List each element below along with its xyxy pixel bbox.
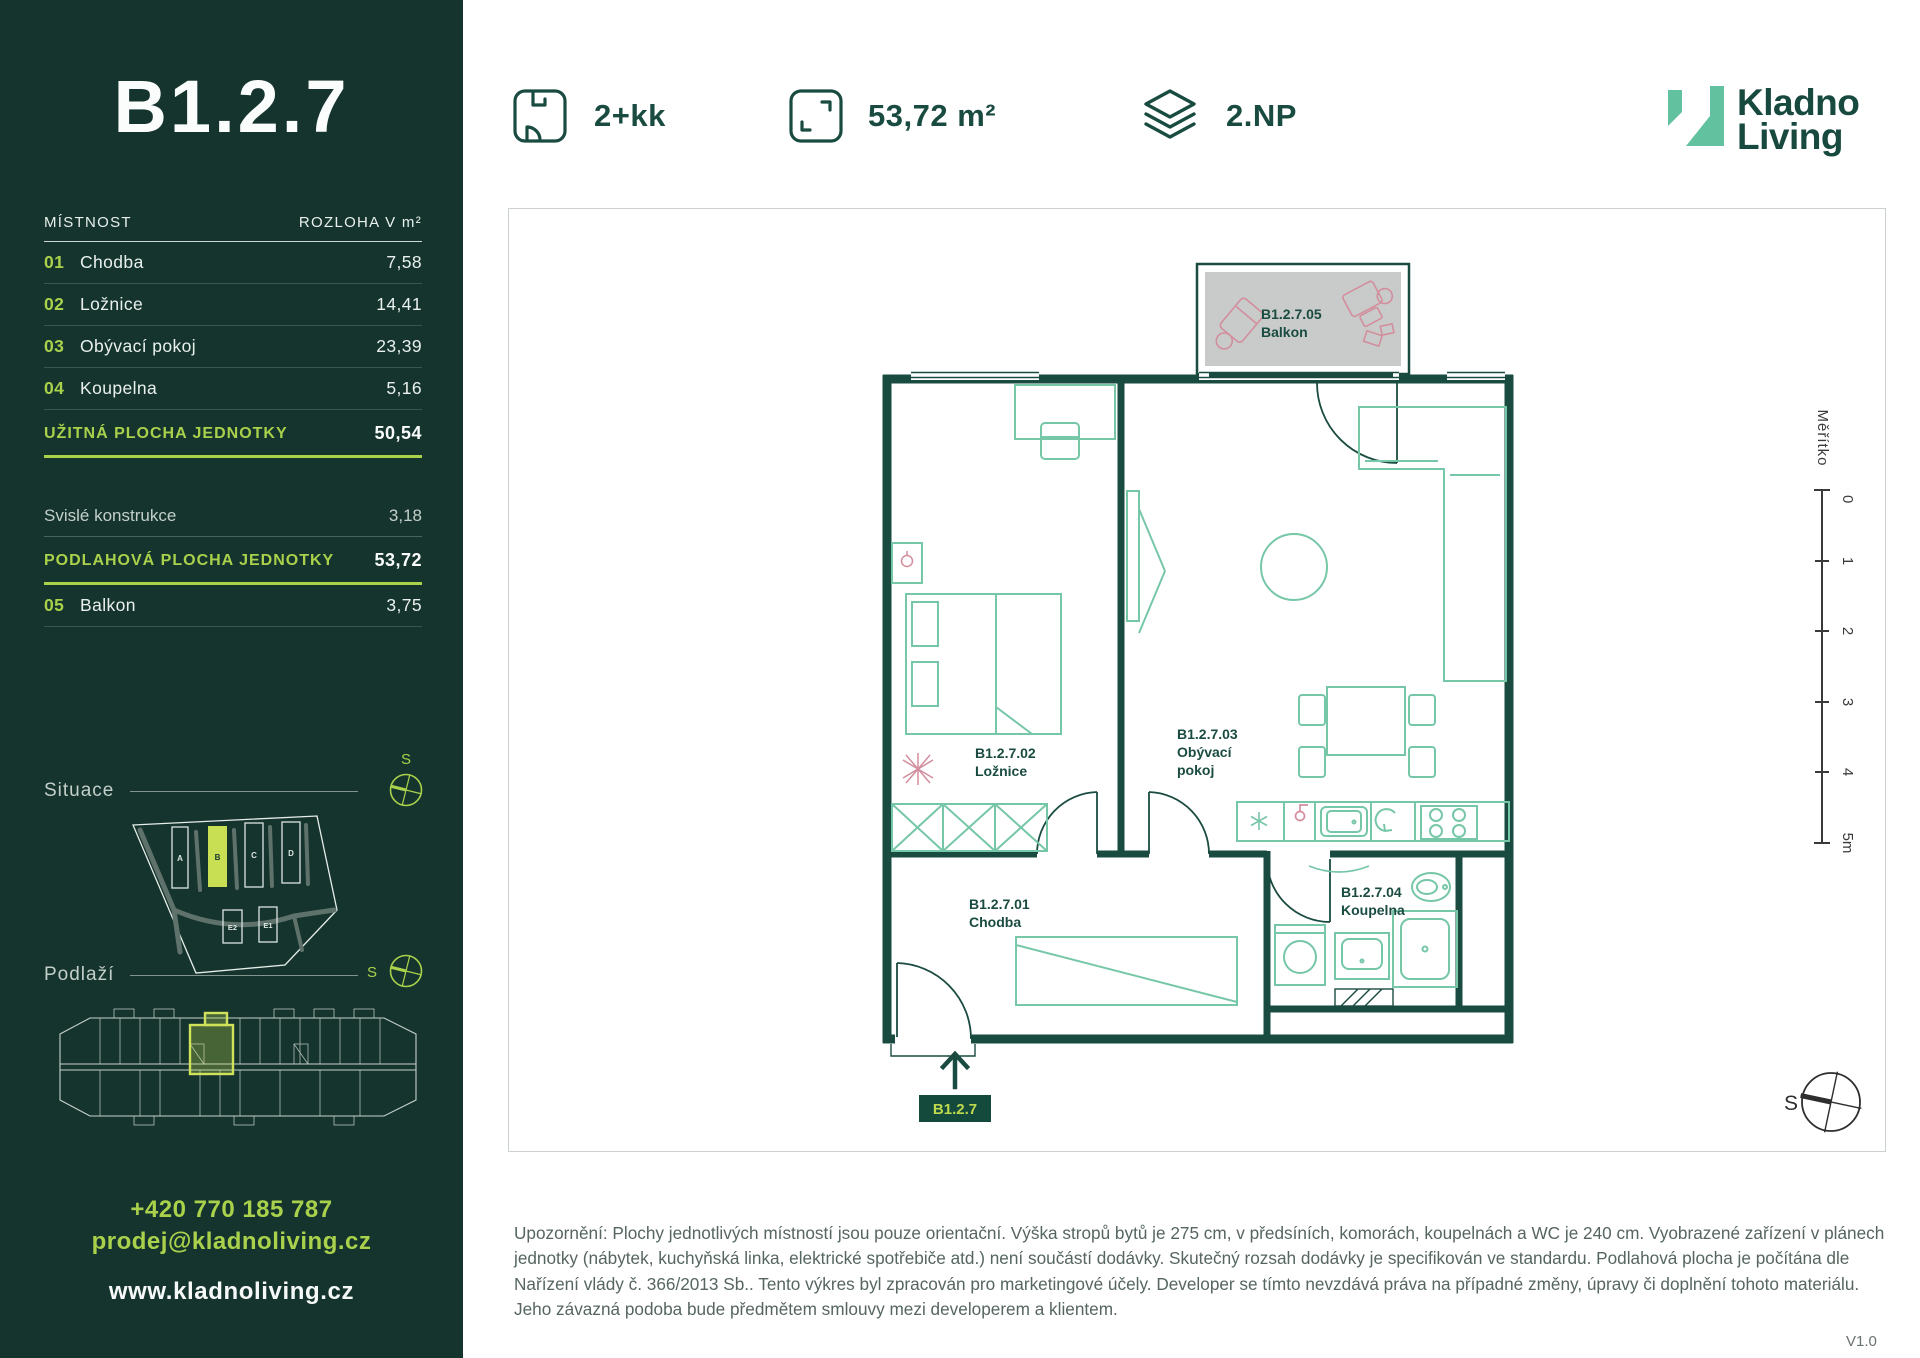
unit-badge: B1.2.7 xyxy=(919,1095,991,1122)
situace-section: Situace S xyxy=(44,780,422,978)
podlazi-label: Podlaží xyxy=(44,964,114,986)
floor-area-row: PODLAHOVÁ PLOCHA JEDNOTKY 53,72 xyxy=(44,537,422,585)
room-area-table: MÍSTNOST ROZLOHA V m² 01 Chodba 7,58 02 … xyxy=(44,214,422,627)
svg-text:S: S xyxy=(1784,1092,1798,1115)
vertical-structures-row: Svislé konstrukce 3,18 xyxy=(44,496,422,537)
svg-text:Balkon: Balkon xyxy=(1261,324,1308,340)
row-area: 7,58 xyxy=(386,252,422,273)
hob-icon xyxy=(1421,806,1477,839)
highlighted-unit xyxy=(190,1013,233,1074)
kitchen xyxy=(1237,802,1509,841)
col-room-header: MÍSTNOST xyxy=(44,214,132,231)
row-number: 03 xyxy=(44,336,80,357)
brand-line2: Living xyxy=(1737,120,1859,154)
row-area: 5,16 xyxy=(386,378,422,399)
spec-floor: 2.NP xyxy=(1140,86,1297,146)
floor-area-value: 53,72 xyxy=(374,550,422,571)
plan-compass-icon: S xyxy=(1784,1065,1868,1139)
row-name: Koupelna xyxy=(80,378,386,399)
podlazi-section: Podlaží S xyxy=(44,964,422,1134)
balcony-row: 05 Balkon 3,75 xyxy=(44,585,422,627)
svg-text:5m: 5m xyxy=(1839,833,1856,854)
spec-disposition: 2+kk xyxy=(512,86,666,146)
layout-icon xyxy=(512,88,568,144)
spec-disposition-label: 2+kk xyxy=(594,98,666,134)
divider-line xyxy=(130,975,358,976)
hall-closet xyxy=(1016,937,1237,1005)
table-header: MÍSTNOST ROZLOHA V m² xyxy=(44,214,422,242)
row-number: 05 xyxy=(44,595,80,616)
svg-text:Chodba: Chodba xyxy=(969,914,1021,930)
fridge-snowflake-icon xyxy=(1251,812,1267,830)
svg-text:A: A xyxy=(177,854,183,863)
spec-floor-label: 2.NP xyxy=(1226,98,1297,134)
room-labels: B1.2.7.02 Ložnice B1.2.7.03 Obývací poko… xyxy=(969,726,1405,930)
compass-icon: S xyxy=(382,748,430,814)
vertical-structures-value: 3,18 xyxy=(389,506,422,526)
version-label: V1.0 xyxy=(1846,1333,1877,1350)
svg-text:B1.2.7.01: B1.2.7.01 xyxy=(969,896,1030,912)
row-area: 23,39 xyxy=(376,336,422,357)
row-number: 02 xyxy=(44,294,80,315)
floor-icon xyxy=(1140,87,1200,145)
svg-text:S: S xyxy=(367,964,377,981)
balcony: B1.2.7.05 Balkon xyxy=(1197,264,1409,374)
svg-text:Obývací: Obývací xyxy=(1177,744,1233,760)
svg-text:E2: E2 xyxy=(228,923,237,932)
living-furniture xyxy=(1127,407,1506,777)
row-area: 3,75 xyxy=(386,595,422,616)
svg-text:E1: E1 xyxy=(263,921,272,930)
scale-bar: Měřítko 0 1 2 3 4 5m xyxy=(1814,409,1856,853)
sidebar: B1.2.7 MÍSTNOST ROZLOHA V m² 01 Chodba 7… xyxy=(0,0,463,1358)
floor-overview-map xyxy=(44,1004,425,1134)
usable-area-label: UŽITNÁ PLOCHA JEDNOTKY xyxy=(44,425,374,443)
svg-text:B1.2.7.02: B1.2.7.02 xyxy=(975,745,1036,761)
spec-area: 53,72 m² xyxy=(788,86,996,146)
svg-text:3: 3 xyxy=(1839,698,1856,706)
row-name: Chodba xyxy=(80,252,386,273)
row-name: Balkon xyxy=(80,595,386,616)
brand-logo: Kladno Living xyxy=(1666,84,1859,155)
svg-text:2: 2 xyxy=(1839,627,1856,635)
svg-text:Měřítko: Měřítko xyxy=(1814,409,1831,466)
contact-web[interactable]: www.kladnoliving.cz xyxy=(0,1278,463,1306)
svg-text:pokoj: pokoj xyxy=(1177,762,1214,778)
svg-text:B1.2.7.03: B1.2.7.03 xyxy=(1177,726,1238,742)
floor-plan-container: B1.2.7.05 Balkon xyxy=(508,208,1886,1152)
svg-text:B1.2.7: B1.2.7 xyxy=(933,1101,977,1118)
bedroom-furniture xyxy=(892,385,1115,851)
svg-text:B1.2.7.05: B1.2.7.05 xyxy=(1261,306,1322,322)
svg-text:B1.2.7.04: B1.2.7.04 xyxy=(1341,884,1402,900)
divider-line xyxy=(130,791,358,792)
unit-title: B1.2.7 xyxy=(0,64,463,149)
table-row: 03 Obývací pokoj 23,39 xyxy=(44,326,422,368)
area-icon xyxy=(788,88,844,144)
svg-text:0: 0 xyxy=(1839,495,1856,503)
floor-plan-svg: B1.2.7.05 Balkon xyxy=(509,209,1885,1151)
brand-line1: Kladno xyxy=(1737,86,1859,120)
walls xyxy=(883,375,1513,1043)
kladno-living-logo-icon xyxy=(1666,84,1724,148)
svg-text:C: C xyxy=(251,851,257,860)
shower-mat xyxy=(1335,989,1393,1006)
svg-text:1: 1 xyxy=(1839,557,1856,565)
contact-email[interactable]: prodej@kladnoliving.cz xyxy=(0,1228,463,1256)
disclaimer-text: Upozornění: Plochy jednotlivých místnost… xyxy=(514,1221,1892,1322)
doors xyxy=(891,383,1397,1056)
svg-text:S: S xyxy=(401,751,411,768)
row-area: 14,41 xyxy=(376,294,422,315)
situace-label: Situace xyxy=(44,780,114,802)
row-name: Ložnice xyxy=(80,294,376,315)
svg-text:D: D xyxy=(288,849,294,858)
usable-area-row: UŽITNÁ PLOCHA JEDNOTKY 50,54 xyxy=(44,410,422,458)
row-name: Obývací pokoj xyxy=(80,336,376,357)
spec-area-label: 53,72 m² xyxy=(868,98,996,134)
usable-area-value: 50,54 xyxy=(374,423,422,444)
kitchen-faucet-icon xyxy=(1296,805,1309,821)
svg-text:Ložnice: Ložnice xyxy=(975,763,1027,779)
contact-phone[interactable]: +420 770 185 787 xyxy=(0,1196,463,1224)
col-area-header: ROZLOHA V m² xyxy=(299,214,422,231)
plant-icon xyxy=(903,753,933,785)
svg-text:B: B xyxy=(215,853,221,862)
vertical-structures-label: Svislé konstrukce xyxy=(44,506,389,526)
compass-icon: S xyxy=(358,952,432,990)
svg-text:4: 4 xyxy=(1839,768,1856,776)
table-row: 01 Chodba 7,58 xyxy=(44,242,422,284)
row-number: 01 xyxy=(44,252,80,273)
row-number: 04 xyxy=(44,378,80,399)
table-row: 02 Ložnice 14,41 xyxy=(44,284,422,326)
table-row: 04 Koupelna 5,16 xyxy=(44,368,422,410)
entrance-arrow xyxy=(943,1054,967,1087)
floor-area-label: PODLAHOVÁ PLOCHA JEDNOTKY xyxy=(44,552,374,570)
svg-text:Koupelna: Koupelna xyxy=(1341,902,1405,918)
